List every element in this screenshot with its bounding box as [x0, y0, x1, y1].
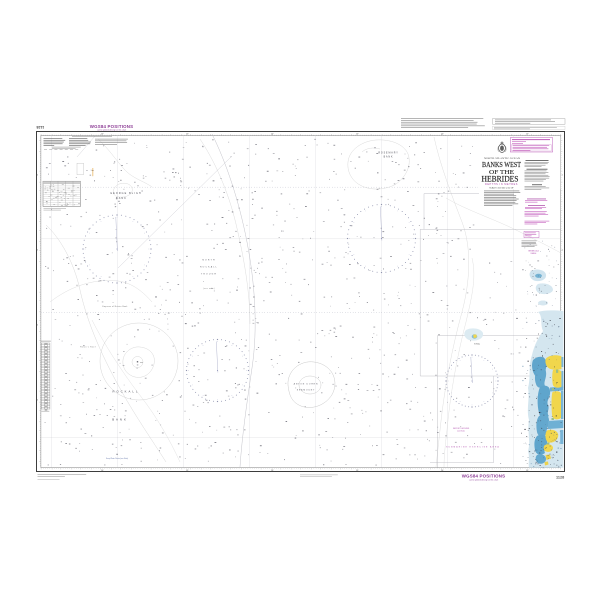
- svg-text:GEORGE BLIGH: GEORGE BLIGH: [110, 192, 142, 195]
- svg-text:15°: 15°: [356, 133, 359, 135]
- svg-text:1128: 1128: [556, 475, 564, 479]
- svg-text:15°: 15°: [526, 470, 529, 472]
- svg-text:10°: 10°: [271, 133, 274, 135]
- svg-text:ANTON DOHRN: ANTON DOHRN: [294, 383, 319, 386]
- svg-text:can be plotted directly on thi: can be plotted directly on this chart: [469, 478, 499, 481]
- svg-text:DEPOSIT GROUND: DEPOSIT GROUND: [453, 428, 470, 430]
- svg-text:10°: 10°: [441, 133, 444, 135]
- svg-text:SUBMARINE EXERCISE AREA: SUBMARINE EXERCISE AREA: [446, 446, 500, 449]
- svg-text:15°: 15°: [186, 470, 189, 472]
- svg-text:St Kilda: St Kilda: [474, 343, 480, 346]
- svg-text:15°: 15°: [356, 470, 359, 472]
- svg-text:NORTH ATLANTIC OCEAN: NORTH ATLANTIC OCEAN: [484, 157, 520, 160]
- svg-text:Deep Water Route (see Note): Deep Water Route (see Note): [106, 457, 129, 460]
- svg-text:(see note): (see note): [203, 287, 215, 290]
- svg-text:DEPTHS IN METRES: DEPTHS IN METRES: [485, 183, 518, 186]
- svg-text:ROSEMARY: ROSEMARY: [378, 152, 398, 155]
- svg-text:WGS84 POSITIONS: WGS84 POSITIONS: [462, 474, 506, 479]
- svg-text:BANK: BANK: [116, 197, 127, 200]
- svg-text:TROUGH: TROUGH: [201, 273, 217, 275]
- svg-text:BANK: BANK: [112, 418, 128, 422]
- svg-text:1128: 1128: [37, 125, 45, 129]
- svg-text:SCALE 1:500 000 at lat 58°: SCALE 1:500 000 at lat 58°: [489, 186, 514, 189]
- svg-text:SEAMOUNT: SEAMOUNT: [297, 388, 316, 391]
- svg-text:BANK: BANK: [384, 155, 394, 158]
- svg-text:Empress of Britain Bank: Empress of Britain Bank: [102, 305, 127, 308]
- svg-text:10°: 10°: [441, 470, 444, 472]
- svg-text:ROCKALL: ROCKALL: [112, 390, 139, 394]
- svg-text:15°: 15°: [186, 133, 189, 135]
- svg-text:10°: 10°: [101, 470, 104, 472]
- svg-text:ROCKALL: ROCKALL: [200, 265, 218, 268]
- svg-text:BENBECULA: BENBECULA: [528, 250, 539, 253]
- svg-text:NORTH: NORTH: [202, 259, 215, 261]
- svg-text:Helen’s Reef: Helen’s Reef: [80, 346, 96, 348]
- svg-text:10°: 10°: [101, 133, 104, 135]
- svg-text:WGS84 POSITIONS: WGS84 POSITIONS: [90, 124, 134, 129]
- svg-text:10°: 10°: [271, 470, 274, 472]
- svg-text:15°: 15°: [526, 133, 529, 135]
